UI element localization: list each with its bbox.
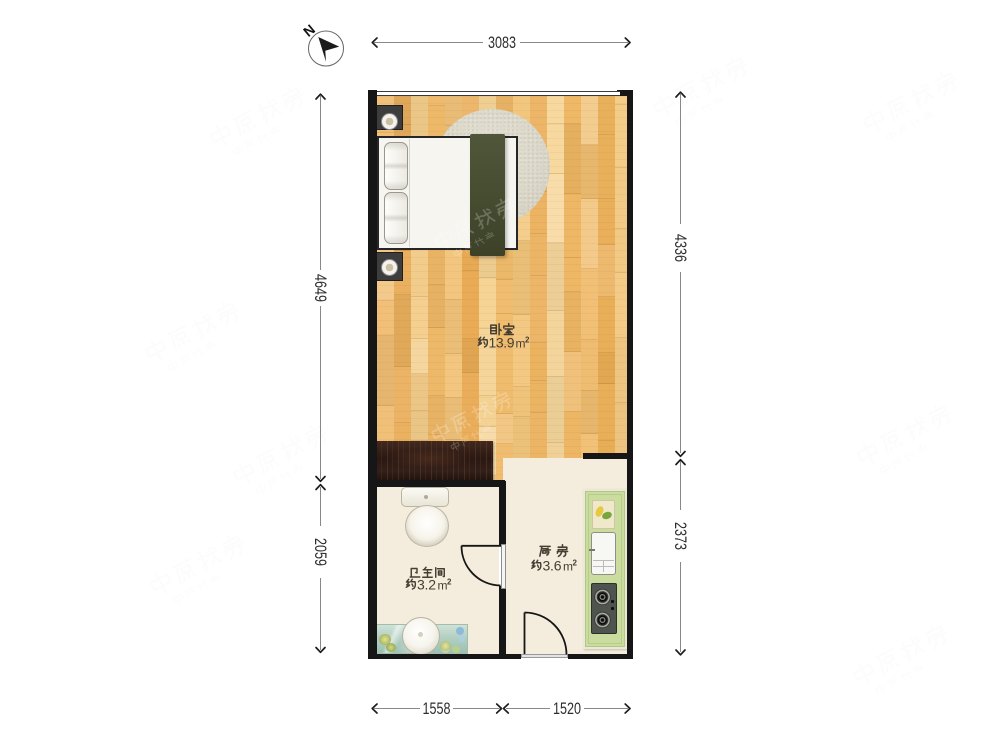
svg-text:2373: 2373 [671,522,690,550]
svg-text:3.2: 3.2 [417,577,436,593]
svg-text:1520: 1520 [553,699,581,718]
svg-text:m: m [438,579,448,593]
svg-text:2: 2 [447,578,452,587]
svg-text:m: m [563,560,573,574]
svg-text:2: 2 [525,336,530,345]
svg-text:3083: 3083 [488,33,516,52]
svg-text:3.6: 3.6 [543,558,562,574]
svg-text:2059: 2059 [311,538,330,566]
svg-text:N: N [300,21,318,40]
svg-text:2: 2 [573,559,578,568]
svg-text:1558: 1558 [423,699,451,718]
svg-text:4649: 4649 [311,274,330,302]
svg-text:13.9: 13.9 [489,335,515,351]
svg-text:m: m [516,337,526,351]
svg-text:4336: 4336 [671,234,690,262]
